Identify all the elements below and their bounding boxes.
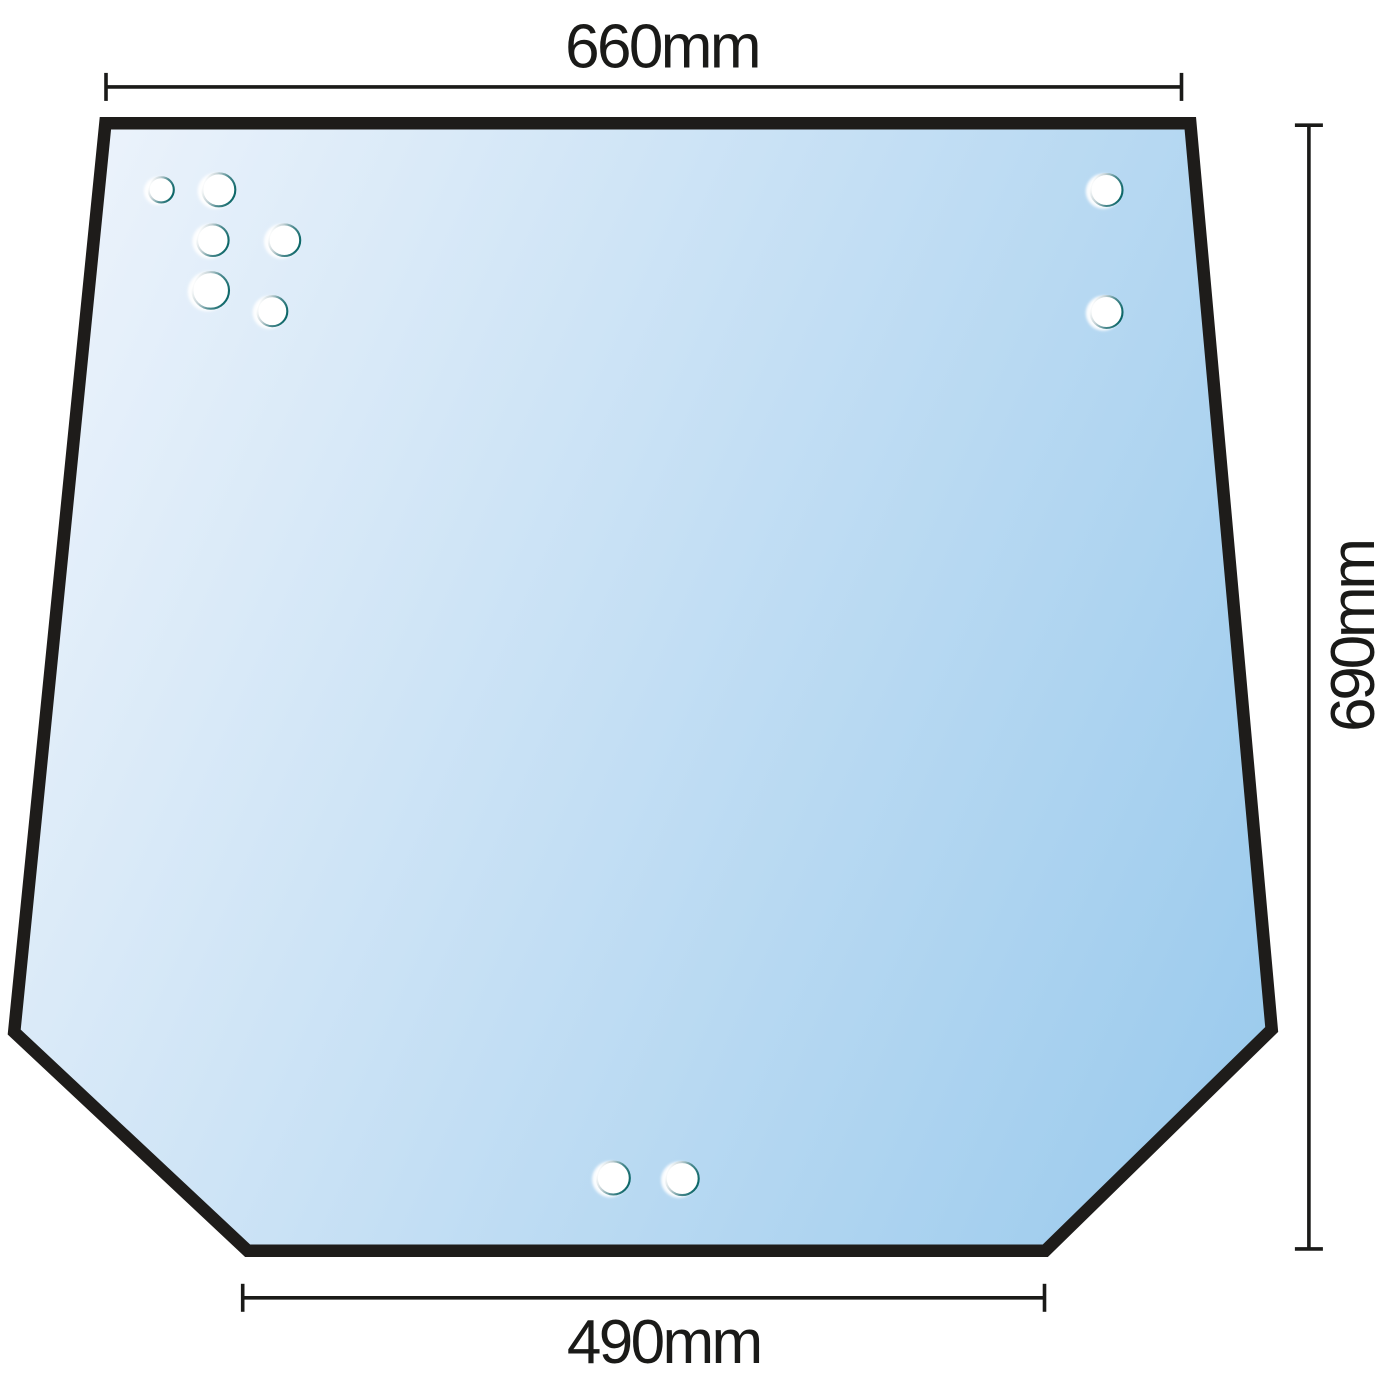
svg-text:690mm: 690mm xyxy=(1319,541,1388,732)
svg-text:660mm: 660mm xyxy=(565,12,759,81)
svg-text:490mm: 490mm xyxy=(567,1308,761,1377)
